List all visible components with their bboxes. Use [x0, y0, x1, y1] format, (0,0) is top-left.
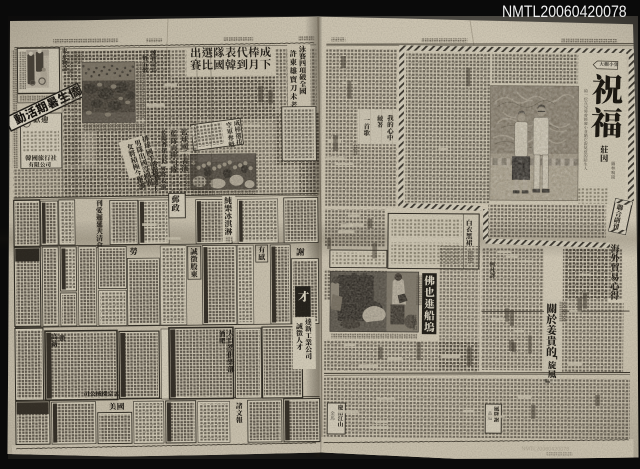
svg-text:NMTL20060420078: NMTL20060420078	[502, 3, 627, 21]
svg-text:NMTL20060420078: NMTL20060420078	[522, 446, 570, 452]
